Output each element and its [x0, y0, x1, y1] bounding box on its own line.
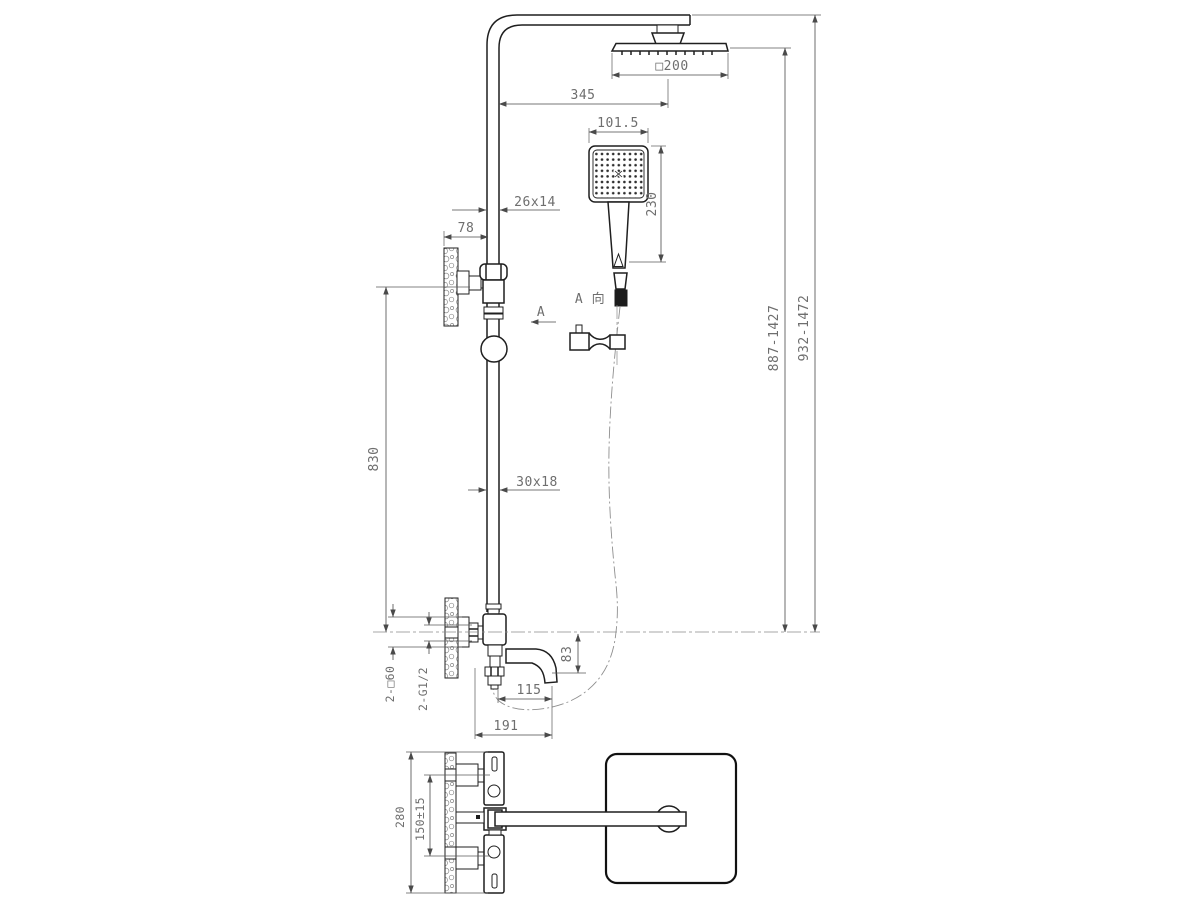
dim-bracket-offset: 78	[458, 221, 475, 236]
dim-escutcheon: 2-□60	[383, 666, 397, 703]
dim-hand-shower-width: 101.5	[597, 116, 639, 131]
swivel-arm	[495, 812, 686, 826]
mount-hole	[488, 785, 500, 797]
diverter-neck	[488, 645, 502, 656]
wall-pipe-opening	[445, 627, 458, 638]
handle-connector	[614, 273, 627, 289]
front-view: A A 向	[444, 15, 728, 710]
riser-pipe	[487, 15, 690, 612]
dim-overall-depth: 280	[393, 806, 407, 828]
bottom-view: 280 150±15	[393, 752, 736, 893]
technical-drawing-shower-system: A A 向 □200 345 101.5 230 26x14 78	[0, 0, 1200, 900]
drawing-svg: A A 向 □200 345 101.5 230 26x14 78	[0, 0, 1200, 900]
lower-wall-mount	[445, 598, 483, 678]
slider-bracket	[480, 264, 507, 319]
dimensions-front: □200 345 101.5 230 26x14 78 830 30x18	[367, 15, 821, 739]
view-direction-label: A 向	[575, 291, 605, 307]
section-arrow: A	[531, 305, 556, 322]
pipe-union	[484, 307, 503, 313]
diverter-plan	[489, 830, 501, 835]
dim-spout-drop: 83	[560, 646, 575, 663]
dim-inlet-spacing: 150±15	[413, 797, 427, 841]
dim-spout-total-reach: 191	[494, 719, 519, 734]
dim-pipe-section-lower: 30x18	[516, 475, 558, 490]
wall-pipe-opening	[445, 847, 456, 859]
dim-height-range-inner: 887-1427	[767, 305, 782, 372]
hose-outlet	[491, 685, 498, 689]
dim-arm-reach: 345	[571, 88, 596, 103]
riser-coupling	[486, 604, 501, 609]
dim-head-width: □200	[655, 59, 688, 74]
section-arrow-label: A	[537, 305, 545, 320]
dim-pipe-length: 830	[367, 447, 382, 472]
hose-nut	[615, 290, 627, 306]
diverter-nut	[485, 667, 504, 676]
handle-slot	[492, 757, 497, 771]
dim-inlet-thread: 2-G1/2	[416, 667, 430, 711]
dim-spout-reach: 115	[517, 683, 542, 698]
pipe-knob	[481, 336, 507, 362]
center-dot	[476, 815, 480, 819]
tub-spout	[506, 649, 557, 683]
rain-shower-head	[612, 44, 728, 56]
dim-pipe-section-upper: 26x14	[514, 195, 556, 210]
mixer-body	[483, 614, 506, 645]
rain-head-connector	[652, 25, 684, 44]
dim-height-range-outer: 932-1472	[797, 295, 812, 362]
pipe-union	[484, 314, 503, 319]
hand-shower	[589, 146, 648, 306]
handle-slot	[492, 874, 497, 888]
mixer-valve	[483, 604, 506, 689]
dim-hand-shower-height: 230	[645, 192, 660, 217]
view-a-holder	[570, 305, 625, 365]
